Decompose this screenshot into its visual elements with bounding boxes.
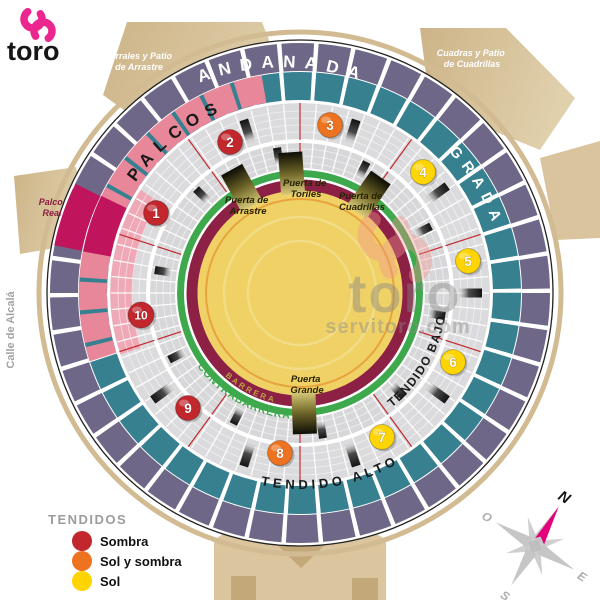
svg-text:8: 8 xyxy=(276,446,284,461)
watermark-toro: toro xyxy=(349,264,462,324)
palco-real-seat-inner xyxy=(97,202,114,254)
legend-swatch-sol xyxy=(72,571,92,591)
compass-letter-s: S xyxy=(498,588,512,600)
label-puerta-cuadrillas: Puerta de Cuadrillas xyxy=(339,191,385,213)
compass-letter-n: N xyxy=(555,487,574,508)
bullring-map-svg: ANDANADA GRADA PALCOS TENDIDO BAJO TENDI… xyxy=(0,0,600,600)
label-palco-real: Palco Real xyxy=(39,197,66,218)
label-puerta-arrastre: Puerta de Arrastre xyxy=(225,195,271,217)
street-label: Calle de Alcalá xyxy=(5,291,17,369)
svg-text:5: 5 xyxy=(464,254,472,269)
east-entrance-building xyxy=(540,141,600,240)
gate-grande xyxy=(291,392,316,435)
legend-item-sol-y-sombra: Sol y sombra xyxy=(72,551,182,571)
watermark-servitoro: servitoro.com xyxy=(325,316,470,338)
svg-text:6: 6 xyxy=(449,355,457,370)
svg-text:1: 1 xyxy=(152,206,160,221)
bullring-seating-map: ANDANADA GRADA PALCOS TENDIDO BAJO TENDI… xyxy=(0,0,600,600)
legend-item-sol: Sol xyxy=(72,571,120,591)
legend-label-sombra: Sombra xyxy=(100,534,149,549)
svg-text:7: 7 xyxy=(378,430,386,445)
svg-text:9: 9 xyxy=(184,401,192,416)
compass-letter-e: E xyxy=(575,568,590,585)
svg-text:3: 3 xyxy=(326,118,334,133)
label-puerta-grande: Puerta Grande xyxy=(290,374,324,396)
legend-title: TENDIDOS xyxy=(48,512,127,527)
svg-text:10: 10 xyxy=(134,309,148,323)
label-cuadras: Cuadras y Patio de Cuadrillas xyxy=(437,48,508,69)
brand-logo-text: toro xyxy=(7,36,59,66)
compass-letter-o: O xyxy=(479,509,495,526)
brand-logo: toro xyxy=(7,6,59,66)
legend-swatch-sombra xyxy=(72,531,92,551)
legend-swatch-sol-y-sombra xyxy=(72,551,92,571)
svg-text:2: 2 xyxy=(226,135,234,150)
legend: TENDIDOS Sombra Sol y sombra Sol xyxy=(48,512,182,591)
legend-label-sol-y-sombra: Sol y sombra xyxy=(100,554,182,569)
legend-label-sol: Sol xyxy=(100,574,120,589)
legend-item-sombra: Sombra xyxy=(72,531,149,551)
compass-rose: N O E S xyxy=(450,459,600,600)
svg-text:4: 4 xyxy=(419,165,427,180)
